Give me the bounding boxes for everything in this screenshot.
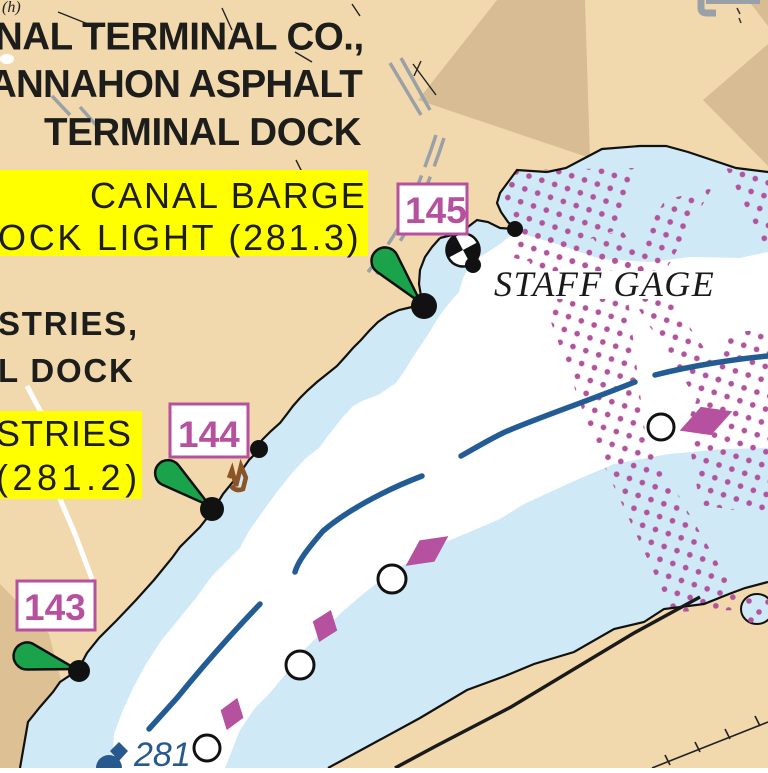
svg-text:STAFF GAGE: STAFF GAGE: [494, 264, 715, 304]
svg-text:NAL TERMINAL CO.,: NAL TERMINAL CO.,: [0, 16, 364, 59]
svg-text:CANAL BARGE: CANAL BARGE: [90, 175, 367, 216]
svg-text:145: 145: [405, 190, 467, 231]
svg-text:144: 144: [178, 414, 240, 455]
svg-text:(h): (h): [2, 0, 21, 16]
svg-text:(281.2): (281.2): [0, 457, 142, 498]
svg-text:STRIES,: STRIES,: [0, 305, 139, 342]
svg-text:L DOCK: L DOCK: [0, 352, 135, 389]
svg-text:ANNAHON ASPHALT: ANNAHON ASPHALT: [0, 63, 363, 106]
svg-text:143: 143: [24, 587, 86, 628]
svg-text:281: 281: [133, 736, 191, 768]
svg-text:STRIES: STRIES: [0, 413, 132, 454]
svg-text:OCK LIGHT (281.3): OCK LIGHT (281.3): [0, 217, 361, 258]
svg-text:TERMINAL DOCK: TERMINAL DOCK: [44, 111, 362, 154]
